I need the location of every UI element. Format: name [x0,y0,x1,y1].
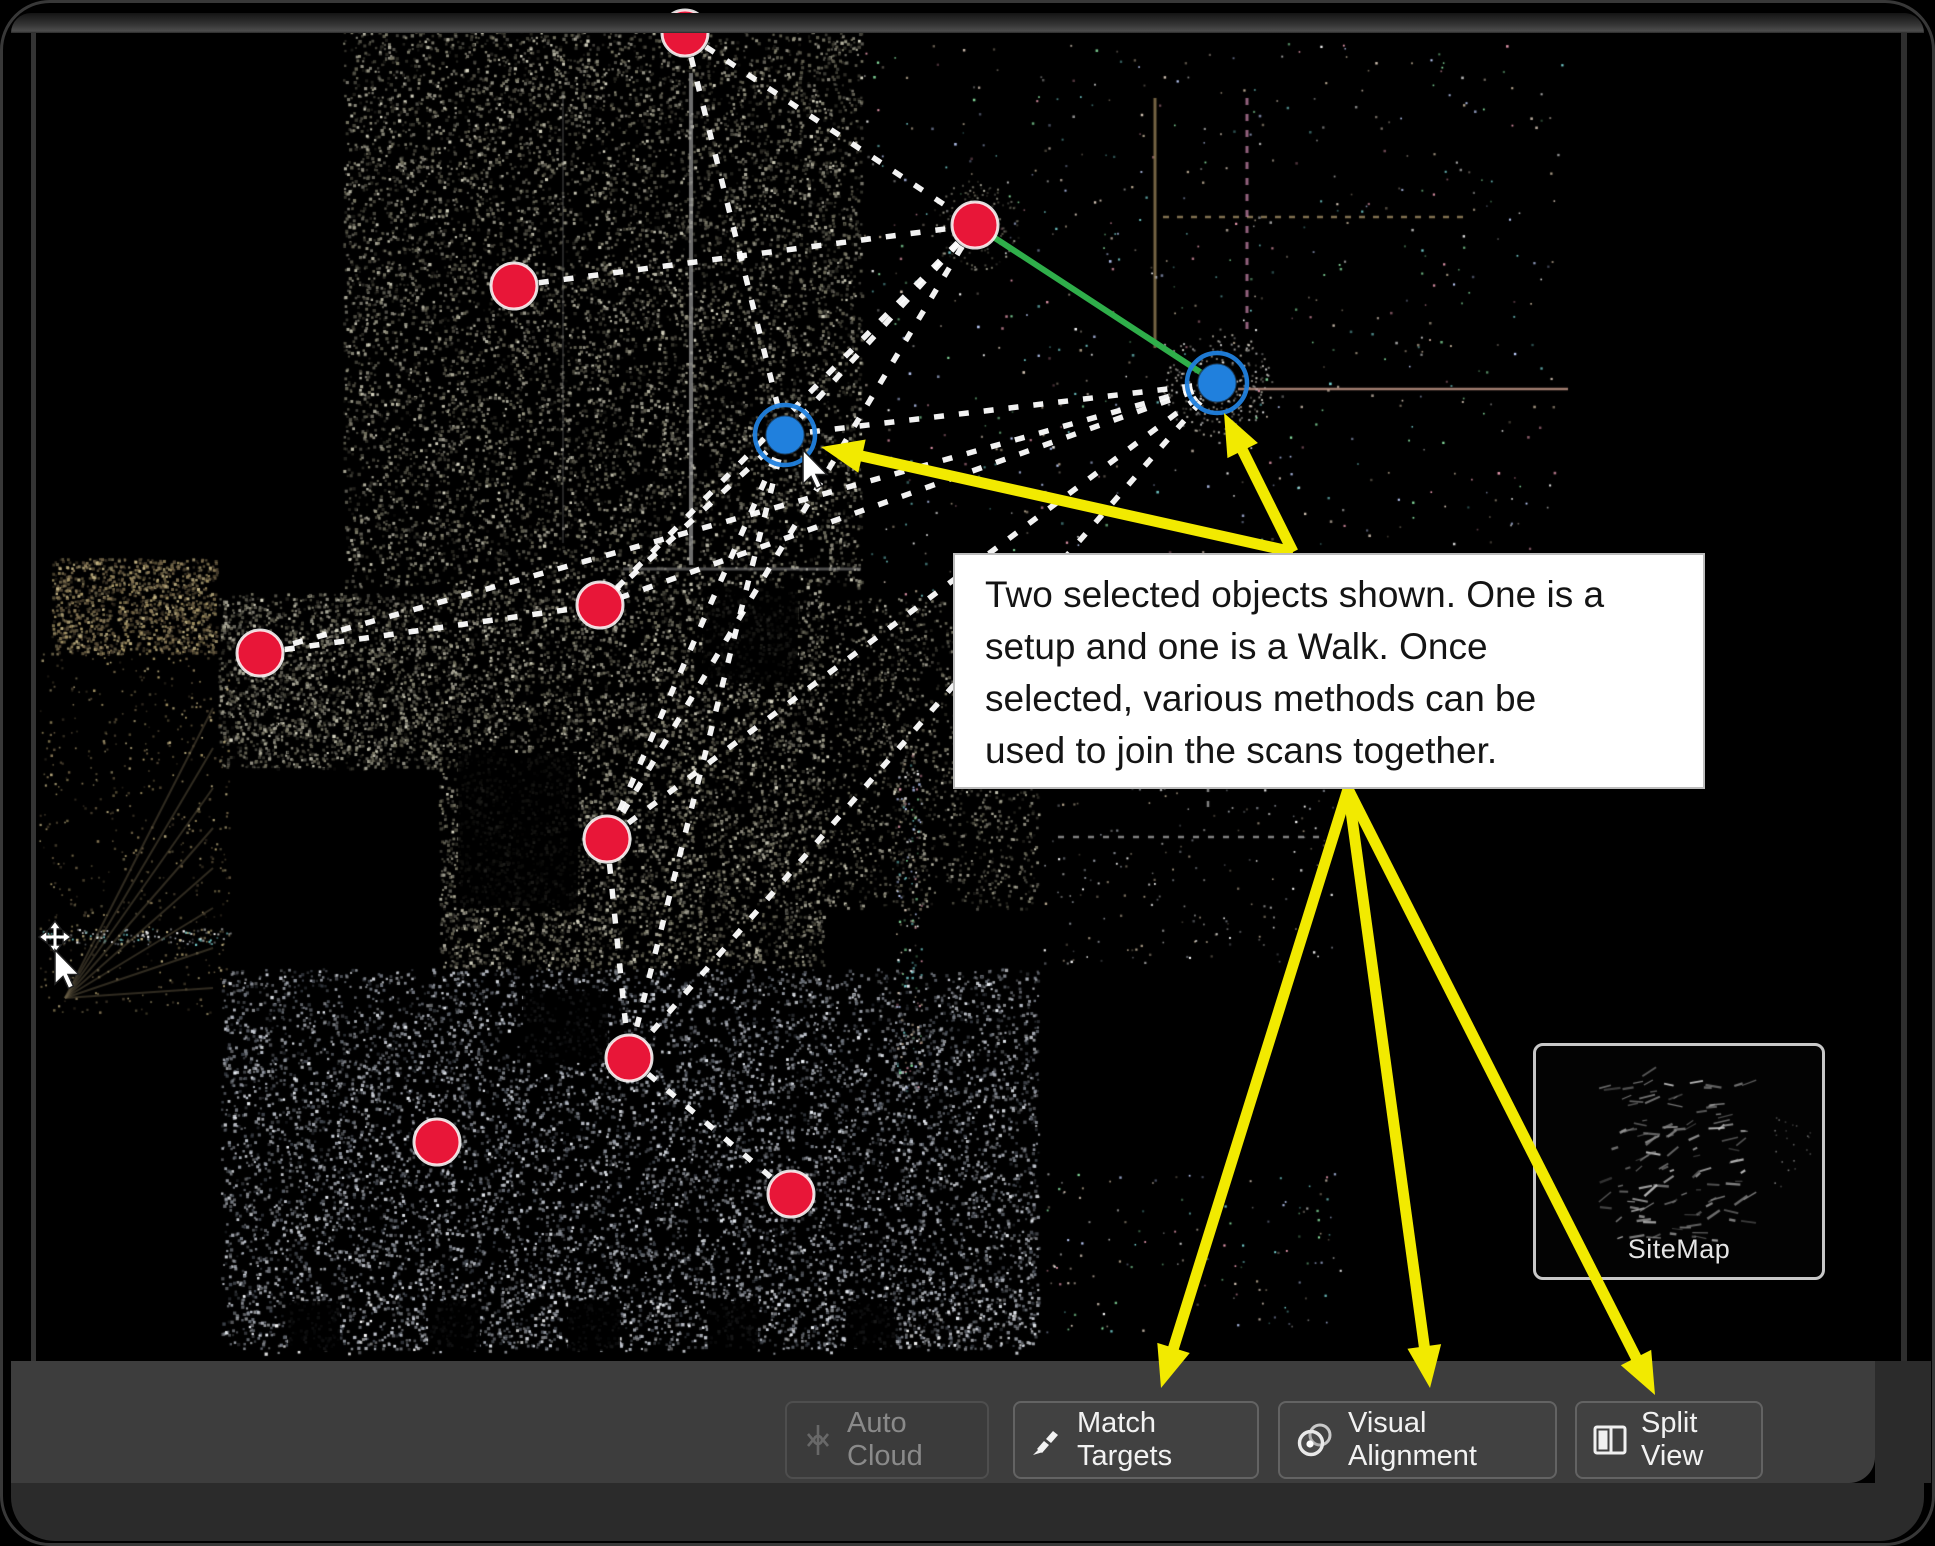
split-view-label: Split View [1641,1407,1747,1473]
auto-cloud-label: Auto Cloud [847,1407,973,1473]
auto-cloud-icon [801,1422,835,1458]
visual-alignment-label: Visual Alignment [1348,1407,1541,1473]
match-targets-icon [1029,1422,1065,1458]
annotation-line: used to join the scans together. [985,725,1685,777]
annotation-line: Two selected objects shown. One is a [985,569,1685,621]
window-bottom-frame [11,1483,1924,1541]
auto-cloud-button[interactable]: Auto Cloud [785,1401,989,1479]
window-top-edge [11,13,1924,33]
sitemap-panel[interactable]: SiteMap [1533,1043,1825,1280]
annotation-callout: Two selected objects shown. One is a set… [953,553,1705,789]
application-window: SiteMap Auto Cloud [0,0,1935,1546]
split-view-icon [1591,1422,1629,1458]
annotation-line: selected, various methods can be [985,673,1685,725]
window-frame [1875,1361,1931,1483]
visual-alignment-button[interactable]: Visual Alignment [1278,1401,1557,1479]
window-left-edge [31,33,36,1361]
annotation-line: setup and one is a Walk. Once [985,621,1685,673]
match-targets-button[interactable]: Match Targets [1013,1401,1259,1479]
visual-alignment-icon [1294,1420,1336,1460]
match-targets-label: Match Targets [1077,1407,1243,1473]
window-right-edge [1901,33,1907,1361]
split-view-button[interactable]: Split View [1575,1401,1763,1479]
sitemap-label: SiteMap [1536,1234,1822,1265]
